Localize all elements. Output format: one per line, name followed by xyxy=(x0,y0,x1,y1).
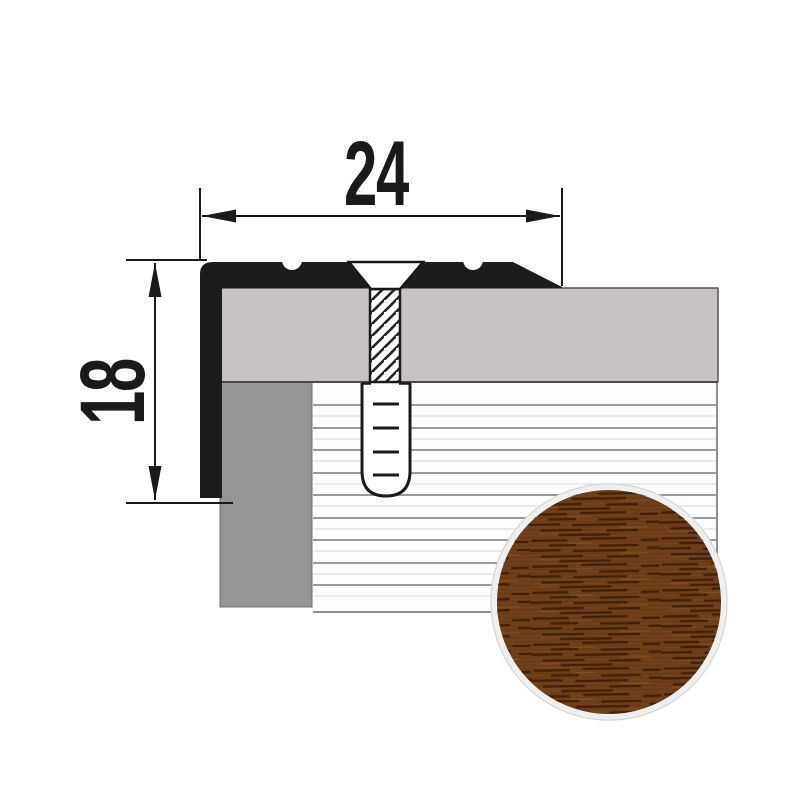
height-arrow-up-icon xyxy=(149,263,162,297)
swatch-fine-grain-overlay xyxy=(497,490,721,714)
anti-slip-notch-right xyxy=(463,250,483,270)
width-dimension: 24 xyxy=(202,123,560,225)
width-arrow-right-icon xyxy=(526,210,560,223)
profile-cross-section-diagram: 24 18 xyxy=(0,0,800,800)
width-dimension-label: 24 xyxy=(344,123,409,225)
height-dimension-label: 18 xyxy=(62,359,164,425)
screw-shank xyxy=(370,289,400,382)
height-dimension: 18 xyxy=(62,263,164,500)
width-arrow-left-icon xyxy=(202,210,236,223)
screw-tip xyxy=(362,383,410,496)
aluminum-base-layer xyxy=(221,288,718,382)
wall-substrate xyxy=(220,382,312,607)
stair-profile-technical-drawing: 24 18 xyxy=(0,0,800,800)
screw-tip-outline xyxy=(362,383,410,496)
anti-slip-notch-left xyxy=(282,250,302,270)
height-arrow-down-icon xyxy=(149,466,162,500)
wood-color-swatch xyxy=(491,484,727,720)
